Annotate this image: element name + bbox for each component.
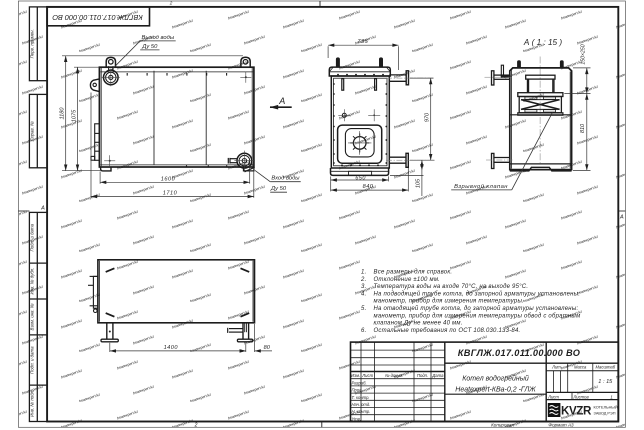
svg-text:Heatexpert-КВа-0,2 -ГЛЖ: Heatexpert-КВа-0,2 -ГЛЖ bbox=[455, 387, 536, 394]
svg-text:Формат А3: Формат А3 bbox=[548, 422, 574, 427]
svg-text:Копировал: Копировал bbox=[491, 422, 514, 427]
svg-text:Пров.: Пров. bbox=[352, 388, 363, 393]
svg-text:Инв. № дубл.: Инв. № дубл. bbox=[30, 267, 35, 294]
svg-text:Перв. примен.: Перв. примен. bbox=[30, 29, 35, 58]
svg-text:735: 735 bbox=[357, 39, 368, 45]
svg-text:Котел водогрейный: Котел водогрейный bbox=[462, 375, 529, 383]
svg-text:650: 650 bbox=[355, 175, 366, 181]
svg-text:KVZR: KVZR bbox=[561, 405, 592, 418]
svg-text:Выход воды: Выход воды bbox=[141, 35, 174, 41]
svg-text:Взам. инв. №: Взам. инв. № bbox=[30, 303, 35, 330]
svg-text:Все размеры для справок.: Все размеры для справок. bbox=[374, 270, 453, 276]
svg-text:А: А bbox=[278, 96, 285, 106]
svg-text:На отводящей трубе котла, до з: На отводящей трубе котла, до запорной ар… bbox=[374, 305, 579, 312]
svg-text:клапаном Ду не менее 40 мм.: клапаном Ду не менее 40 мм. bbox=[374, 321, 463, 327]
svg-text:Отклонение ±100 мм.: Отклонение ±100 мм. bbox=[374, 277, 441, 283]
svg-text:КВГЛЖ.017.011.00.000 ВО: КВГЛЖ.017.011.00.000 ВО bbox=[52, 13, 143, 22]
svg-text:Разраб.: Разраб. bbox=[352, 380, 367, 385]
svg-text:Лист: Лист bbox=[547, 394, 559, 399]
svg-text:5.: 5. bbox=[361, 306, 366, 312]
svg-text:На подводящей трубе котла, до: На подводящей трубе котла, до запорной а… bbox=[374, 290, 581, 297]
svg-text:Листов: Листов bbox=[572, 394, 589, 399]
svg-text:Масса: Масса bbox=[574, 364, 587, 369]
svg-text:Инв. № подл.: Инв. № подл. bbox=[30, 390, 35, 417]
svg-text:1400: 1400 bbox=[164, 345, 179, 351]
svg-text:1: 1 bbox=[610, 394, 612, 399]
svg-text:Ду 50: Ду 50 bbox=[270, 186, 287, 192]
svg-text:А: А bbox=[619, 215, 624, 221]
svg-text:2: 2 bbox=[169, 1, 173, 6]
svg-text:№ докум.: № докум. bbox=[385, 373, 403, 378]
svg-text:Т. контр.: Т. контр. bbox=[352, 395, 370, 400]
svg-text:Остальные требования по ОСТ 10: Остальные требования по ОСТ 108.030.133-… bbox=[374, 328, 521, 334]
svg-text:Дата: Дата bbox=[431, 373, 444, 378]
svg-text:Вход воды: Вход воды bbox=[271, 176, 300, 182]
svg-text:810: 810 bbox=[580, 123, 586, 133]
svg-text:Утв.: Утв. bbox=[352, 416, 362, 421]
svg-text:1.: 1. bbox=[361, 270, 366, 276]
svg-text:970: 970 bbox=[425, 112, 431, 122]
svg-text:4.: 4. bbox=[361, 291, 366, 297]
svg-text:Справ. №: Справ. № bbox=[30, 121, 35, 141]
svg-text:Взрывной клапан: Взрывной клапан bbox=[454, 183, 508, 190]
svg-text:150×250: 150×250 bbox=[580, 44, 586, 64]
svg-text:1 : 15: 1 : 15 bbox=[598, 379, 613, 385]
svg-text:Н. контр.: Н. контр. bbox=[352, 409, 371, 414]
svg-text:Изм.: Изм. bbox=[351, 373, 360, 378]
svg-text:КВГЛЖ.017.011.00.000 ВО: КВГЛЖ.017.011.00.000 ВО bbox=[458, 348, 581, 358]
svg-text:Температура воды на входе 70°С: Температура воды на входе 70°С, на выход… bbox=[374, 284, 529, 290]
svg-text:Нач. отд.: Нач. отд. bbox=[352, 402, 371, 407]
svg-text:2.: 2. bbox=[360, 277, 366, 283]
svg-text:80: 80 bbox=[264, 345, 271, 351]
svg-text:1600: 1600 bbox=[161, 176, 176, 182]
svg-text:Лист: Лист bbox=[361, 373, 373, 378]
svg-text:Подп. и дата: Подп. и дата bbox=[30, 223, 35, 251]
svg-text:А ( 1 : 15 ): А ( 1 : 15 ) bbox=[523, 38, 562, 47]
svg-text:1710: 1710 bbox=[163, 191, 178, 197]
svg-text:манометр, прибор для измерения: манометр, прибор для измерения температу… bbox=[374, 313, 581, 319]
svg-text:КОТЕЛЬНЫЙ: КОТЕЛЬНЫЙ bbox=[594, 406, 618, 410]
svg-text:2: 2 bbox=[194, 423, 198, 429]
svg-text:Подп. и дата: Подп. и дата bbox=[30, 346, 35, 374]
svg-text:105: 105 bbox=[416, 178, 422, 188]
svg-text:6.: 6. bbox=[361, 328, 366, 334]
svg-text:Ду 50: Ду 50 bbox=[141, 44, 158, 50]
svg-text:манометр, прибор для измерения: манометр, прибор для измерения температу… bbox=[374, 299, 524, 305]
svg-text:ЗАВОД РЭП: ЗАВОД РЭП bbox=[594, 412, 616, 416]
svg-text:Масштаб: Масштаб bbox=[596, 364, 616, 369]
svg-text:840: 840 bbox=[363, 184, 374, 190]
svg-text:А: А bbox=[40, 206, 45, 212]
svg-text:1075: 1075 bbox=[72, 109, 78, 122]
svg-text:1180: 1180 bbox=[60, 107, 66, 120]
svg-text:3.: 3. bbox=[361, 284, 366, 290]
svg-text:Подп.: Подп. bbox=[417, 373, 428, 378]
svg-text:Лит.: Лит. bbox=[551, 364, 562, 369]
